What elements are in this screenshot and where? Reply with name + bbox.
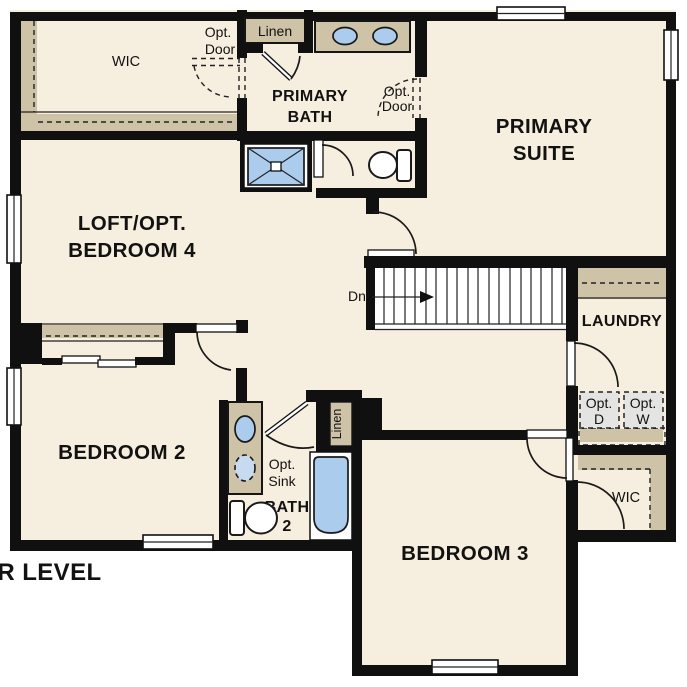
sliding-door-panel [98, 360, 136, 367]
toilet-icon [369, 150, 411, 181]
sliding-door-panel [62, 356, 100, 363]
stairwell [375, 268, 566, 330]
bath2-label-2: 2 [282, 518, 291, 535]
window [143, 535, 213, 549]
wall-laundry-left-lower [566, 386, 578, 445]
wall-bedroom3-top [352, 430, 527, 440]
wall-bath2-left [219, 400, 228, 540]
window [7, 195, 21, 263]
washer-dryer-counter [580, 429, 663, 442]
laundry-label: LAUNDRY [582, 313, 662, 330]
floor-plan-drawing: WIC Opt. Door Linen PRIMARY BATH [0, 0, 687, 687]
wall-linen-left [243, 43, 263, 53]
opt-washer-label-1: Opt. [630, 395, 656, 411]
wall-wic-bottom [10, 131, 240, 140]
wall-stairs-top [364, 256, 676, 268]
wall-suite-left-upper [415, 12, 427, 77]
wall-bath-mid [237, 131, 417, 141]
opt-dryer-label-1: Opt. [586, 395, 612, 411]
window [497, 7, 565, 20]
bathtub-icon [310, 452, 352, 540]
window [432, 660, 498, 674]
primary-suite-label-2: SUITE [513, 142, 575, 165]
primary-suite-label-1: PRIMARY [496, 115, 593, 138]
sink-icon [333, 28, 357, 45]
wic3-shelf-right [650, 470, 666, 530]
opt-sink-label-1: Opt. [269, 456, 295, 472]
wall-stairs-left [366, 268, 375, 330]
loft-label-2: BEDROOM 4 [68, 239, 196, 262]
linen-bath2-label: Linen [330, 409, 344, 440]
stairs-down-label: Dn [348, 288, 366, 304]
wall-bedroom2-stub [236, 320, 248, 333]
primary-wic-label: WIC [112, 54, 140, 70]
wall-suite-left-lower [415, 118, 427, 198]
wall-wic3-top [566, 445, 666, 455]
wall-bedroom2-doorframe [175, 323, 197, 333]
wall-bath2-top [306, 390, 362, 402]
wall-bedroom2-nook [236, 368, 247, 404]
wall-toilet-room-bottom [316, 188, 418, 198]
loft-label-1: LOFT/OPT. [78, 212, 186, 235]
linen-closet-top: Linen [245, 18, 305, 43]
sink-icon [373, 28, 397, 45]
opt-door-suite-label-2: Door [382, 98, 413, 114]
shower-icon [240, 140, 312, 192]
plan-title: UPPER LEVEL [0, 559, 102, 586]
opt-door-wic-label-1: Opt. [205, 24, 231, 40]
window [664, 30, 678, 80]
optional-sink-icon [235, 455, 255, 481]
sink-icon [235, 416, 255, 442]
opt-dryer-label-2: D [594, 411, 604, 427]
floor-plan-page: WIC Opt. Door Linen PRIMARY BATH [0, 0, 687, 687]
window [7, 368, 21, 425]
bedroom3-label: BEDROOM 3 [401, 542, 529, 565]
opt-door-suite-label-1: Opt. [384, 83, 410, 99]
wall-linen2-left [316, 402, 330, 448]
opt-washer-label-2: W [636, 411, 650, 427]
wall-linen-vanity-stub [304, 10, 313, 53]
bedroom2-label: BEDROOM 2 [58, 441, 186, 464]
wic3-shelf-top [578, 455, 666, 470]
wall-laundry-left-upper [566, 268, 578, 341]
toilet-icon [230, 501, 277, 535]
opt-door-wic-label-2: Door [205, 41, 236, 57]
primary-bath-label-1: PRIMARY [272, 88, 348, 105]
linen-top-label: Linen [258, 23, 292, 39]
room-bedroom2: BEDROOM 2 [58, 441, 186, 464]
linen-closet-bath2: Linen [330, 402, 352, 446]
primary-bath-label-2: BATH [288, 109, 333, 126]
opt-sink-label-2: Sink [268, 473, 296, 489]
staircase: Dn [348, 268, 566, 330]
